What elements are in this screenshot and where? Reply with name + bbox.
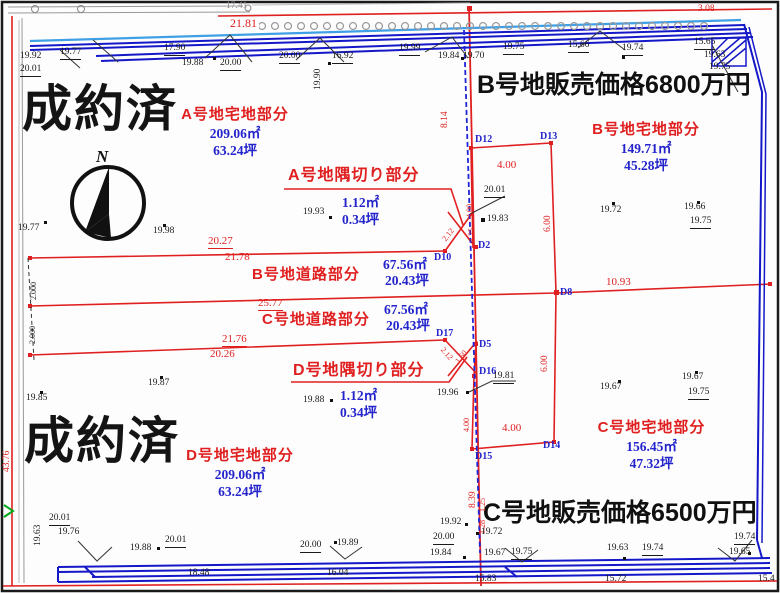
measurement-label: 19.63 [607,544,628,554]
measurement-label: 19.76 [58,528,79,538]
price-banner-c: C号地販売価格6500万円 [483,501,757,526]
measurement-label: 19.92 [440,518,461,528]
measurement-label: 19.66 [684,203,705,213]
measurement-label: 19.72 [600,206,621,216]
measurement-label: 20.01 [20,65,41,77]
compass-north-label: N [96,148,108,165]
plot-a-title: A号地宅地部分 [160,107,310,122]
wall-hatch-pattern [256,20,708,32]
sold-label-bottom: 成約済 [24,416,180,466]
plot-d-area-m2: 209.06㎡ [160,468,320,482]
measurement-label: 15.66 [568,41,589,53]
measurement-label: 15.4 [758,575,775,585]
measurement-label: 19.74 [622,44,643,56]
measurement-label: 19.89 [337,539,358,549]
plot-c-title: C号地宅地部分 [569,420,734,435]
corner-d-areas: 1.12㎡ 0.34坪 [316,386,401,419]
measurement-label: 19.87 [148,379,169,389]
measurement-label: 19.67 [682,373,703,383]
measurement-label: 20.00 [433,533,454,545]
measurement-label: 20.00 [300,541,321,553]
measurement-label: 19.75 [511,548,532,560]
measurement-label: 10.93 [606,277,631,288]
measurement-label: 19.90 [314,69,324,90]
corner-d-area-m2: 1.12㎡ [316,389,401,403]
measurement-label: 19.77 [60,48,81,60]
measurement-label: 17.90 [164,44,185,56]
road-c-area-m2: 67.56㎡ [384,303,428,317]
price-banner-b: B号地販売価格6800万円 [477,73,751,98]
point-label: D12 [475,135,492,145]
measurement-label: 20.01 [484,186,505,198]
measurement-label: 21.76 [222,334,247,347]
measurement-label: 15.65 [694,38,715,50]
road-b-area-tsubo: 20.43坪 [385,274,429,288]
measurement-label: 4.00 [463,418,471,432]
land-survey-map: N 成約済 成約済 B号地販売価格6800万円 C号地販売価格6500万円 A号… [0,0,780,593]
plot-d-block: D号地宅地部分 209.06㎡ 63.24坪 [160,448,320,498]
measurement-label: 19.99 [399,44,420,56]
measurement-label: 16.92 [332,52,353,64]
point-label: D10 [434,253,451,263]
measurement-label: 19.84 [430,549,451,559]
measurement-label: 19.88 [130,544,151,554]
sold-label-top: 成約済 [22,84,178,134]
measurement-label: 17.41 [226,2,247,12]
measurement-label: 8.14 [441,111,451,128]
road-c-area-tsubo: 20.43坪 [386,319,430,333]
measurement-label: 19.74 [734,533,755,545]
measurement-label: 21.78 [225,252,250,263]
measurement-label: 19.88 [303,396,324,406]
measurement-label: 20.27 [208,236,233,249]
measurement-label: 19.65 [729,548,750,558]
measurement-label: 6.00 [541,355,551,372]
plot-c-block: C号地宅地部分 156.45㎡ 47.32坪 [569,420,734,470]
road-c-title: C号地道路部分 [262,312,370,327]
measurement-label: 19.75 [503,43,524,55]
measurement-label: 19.67 [600,383,621,393]
compass-icon [61,156,155,250]
measurement-label: 3.08 [698,5,715,15]
measurement-label: 19.88 [182,59,203,69]
point-label: D14 [543,441,560,451]
plot-b-area-m2: 149.71㎡ [566,142,726,156]
point-label: D17 [436,329,453,339]
measurement-label: 1.25 [479,498,487,512]
plot-d-title: D号地宅地部分 [160,448,320,463]
measurement-label: 19.96 [437,389,458,399]
measurement-label: 19.63 [34,525,44,546]
measurement-label: 25.77 [258,298,283,311]
measurement-label: 2.000 [29,326,37,344]
measurement-label: 19.63 [704,51,725,61]
measurement-label: 20.00 [220,59,241,71]
measurement-label: 19.85 [26,394,47,404]
measurement-label: 6.00 [544,215,554,232]
measurement-label: 2.000 [30,282,38,300]
measurement-label: 21.81 [228,17,259,29]
plot-a-block: A号地宅地部分 209.06㎡ 63.24坪 [160,107,310,157]
measurement-label: 15.72 [605,575,626,585]
measurement-label: 19.75 [688,388,709,400]
measurement-label: 16.04 [327,569,348,579]
point-label: D13 [540,132,557,142]
measurement-label: 19.72 [481,528,502,538]
corner-d-area-tsubo: 0.34坪 [316,406,401,420]
measurement-label: 20.00 [279,52,300,64]
point-label: D2 [478,241,490,251]
corner-a-title: A号地隅切り部分 [288,168,420,184]
plot-c-area-m2: 156.45㎡ [569,440,734,454]
plot-c-area-tsubo: 47.32坪 [569,457,734,471]
point-label: D15 [475,452,492,462]
corner-a-areas: 1.12㎡ 0.34坪 [318,193,403,226]
measurement-label: 20.26 [210,349,235,360]
point-label: D5 [479,340,491,350]
measurement-label: 19.74 [642,544,663,556]
plot-b-block: B号地宅地部分 149.71㎡ 45.28坪 [566,122,726,172]
measurement-label: 19.81 [493,372,514,384]
measurement-label: 4.00 [497,160,516,171]
measurement-label: 19.67 [484,549,505,559]
road-b-title: B号地道路部分 [252,267,360,282]
plot-a-area-tsubo: 63.24坪 [160,144,310,158]
measurement-label: 19.83 [487,215,508,225]
measurement-label: 19.92 [20,52,41,62]
measurement-label: 4.00 [502,423,521,434]
measurement-label: 19.75 [709,63,730,75]
measurement-label: 19.70 [463,52,484,62]
road-b-area-m2: 67.56㎡ [383,258,427,272]
corner-a-area-tsubo: 0.34坪 [318,213,403,227]
measurement-label: 19.93 [303,208,324,218]
measurement-label: 15.83 [475,575,496,585]
measurement-label: 19.77 [18,224,39,234]
measurement-label: 43.76 [3,451,13,472]
plot-a-area-m2: 209.06㎡ [160,127,310,141]
point-label: D8 [560,288,572,298]
plot-b-title: B号地宅地部分 [566,122,726,137]
plot-b-area-tsubo: 45.28坪 [566,159,726,173]
plot-d-area-tsubo: 63.24坪 [160,485,320,499]
corner-d-title: D号地隅切り部分 [293,363,425,379]
measurement-label: 20.01 [165,536,186,548]
measurement-label: 18.48 [188,569,209,579]
measurement-label: 19.75 [690,217,711,229]
corner-a-area-m2: 1.12㎡ [318,196,403,210]
measurement-label: 1.25 [468,228,476,242]
measurement-label: 4.00 [466,204,474,218]
measurement-label: 20.01 [49,514,70,526]
measurement-label: 19.84 [438,52,459,62]
measurement-label: 19.98 [153,227,174,237]
